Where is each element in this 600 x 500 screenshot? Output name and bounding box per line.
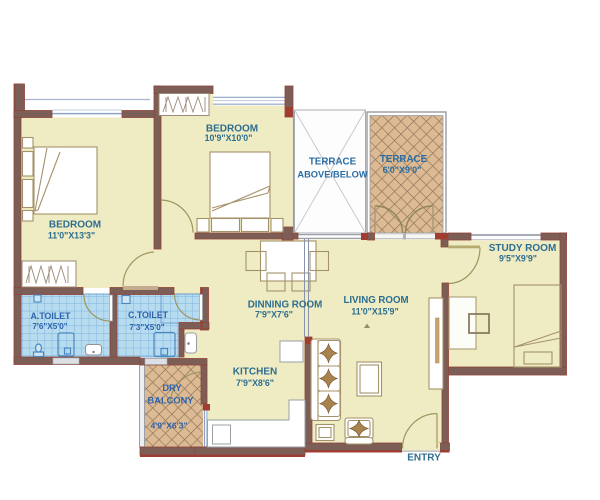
svg-text:TERRACE: TERRACE [309, 157, 357, 168]
svg-text:BALCONY: BALCONY [148, 396, 195, 406]
svg-text:9'5"X9'9": 9'5"X9'9" [499, 254, 537, 264]
svg-text:7'6"X5'0": 7'6"X5'0" [32, 322, 67, 331]
svg-text:10'9"X10'0": 10'9"X10'0" [205, 133, 253, 143]
svg-text:7'3"X5'0": 7'3"X5'0" [129, 323, 164, 332]
svg-text:A.TOILET: A.TOILET [31, 311, 72, 321]
svg-text:6'0"X9'0": 6'0"X9'0" [383, 165, 422, 175]
svg-text:7'9"X8'6": 7'9"X8'6" [236, 378, 274, 388]
svg-text:LIVING ROOM: LIVING ROOM [343, 295, 408, 306]
svg-text:7'9"X7'6": 7'9"X7'6" [255, 310, 293, 320]
svg-text:ENTRY: ENTRY [407, 453, 441, 464]
svg-text:STUDY ROOM: STUDY ROOM [489, 243, 557, 254]
svg-text:4'9"X6'3": 4'9"X6'3" [150, 421, 187, 431]
svg-text:DRY: DRY [162, 383, 182, 393]
svg-text:11'0"X15'9": 11'0"X15'9" [351, 307, 398, 317]
svg-text:TERRACE: TERRACE [380, 154, 428, 165]
svg-text:11'0"X13'3": 11'0"X13'3" [48, 231, 95, 241]
svg-text:ABOVE/BELOW: ABOVE/BELOW [297, 170, 367, 180]
svg-text:BEDROOM: BEDROOM [49, 220, 101, 231]
svg-text:KITCHEN: KITCHEN [233, 367, 277, 378]
svg-text:C.TOILET: C.TOILET [128, 310, 169, 320]
